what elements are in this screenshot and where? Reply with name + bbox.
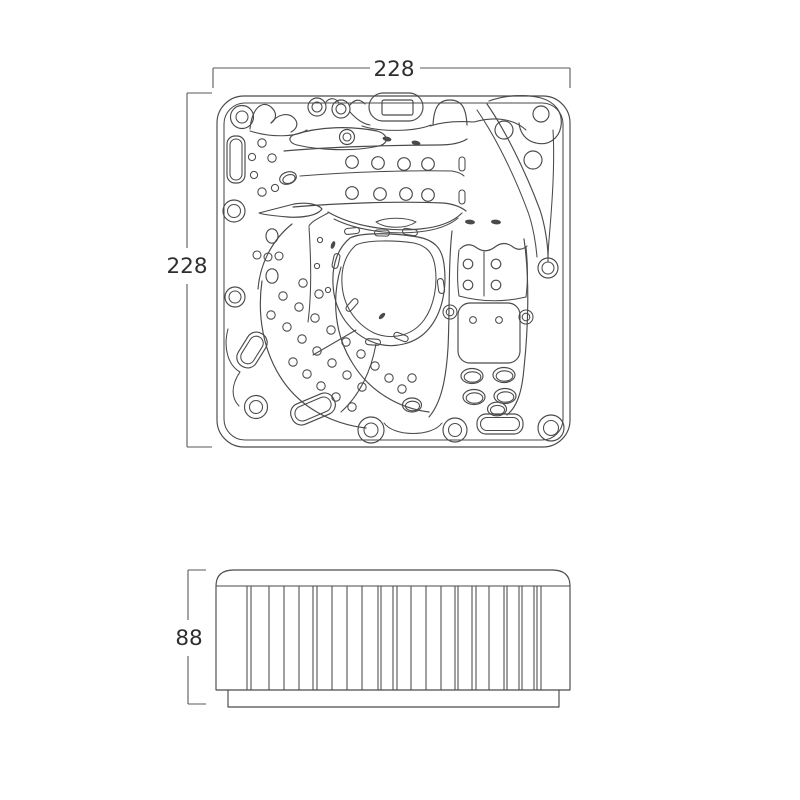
seat-left <box>226 139 429 428</box>
control-panel-bezel <box>369 93 423 121</box>
ring-fittings <box>223 106 564 444</box>
bench-slots <box>459 157 465 204</box>
dimension-left-depth: 228 <box>166 93 212 447</box>
dimension-drawing: 228 228 88 <box>0 0 800 800</box>
footwell-slot-jets <box>330 227 445 345</box>
headrest-left <box>227 136 245 183</box>
left-depth-value: 228 <box>166 254 207 279</box>
seat-wavy-top <box>460 244 527 251</box>
left-seat-jets <box>248 139 298 196</box>
suction-ovals <box>461 368 516 416</box>
dimension-side-height: 88 <box>175 570 206 704</box>
corner-lounge-back <box>477 96 561 262</box>
footwell <box>309 212 462 412</box>
cabinet-base <box>228 690 559 707</box>
control-panel <box>362 93 431 130</box>
tub-inner-rim <box>224 103 563 440</box>
cabinet-slats <box>247 586 541 690</box>
jet-pad-right <box>477 414 523 434</box>
control-panel-screen <box>382 100 413 115</box>
seat-right <box>384 231 528 434</box>
side-height-value: 88 <box>175 626 202 651</box>
tub-outer-shell <box>217 96 570 447</box>
tiny-jets <box>314 237 330 292</box>
jet-pad-upper <box>233 328 271 371</box>
top-width-value: 228 <box>373 57 414 82</box>
side-view <box>216 570 570 707</box>
spa-dimension-drawing-svg: 228 228 88 <box>0 0 800 800</box>
dimension-top-width: 228 <box>213 57 570 88</box>
seat-divider <box>308 227 311 322</box>
top-view <box>217 93 570 447</box>
right-seat-jets <box>463 259 502 323</box>
bench-dashes <box>382 136 501 225</box>
lower-seat-back <box>458 303 520 363</box>
bench-jets <box>346 156 435 202</box>
